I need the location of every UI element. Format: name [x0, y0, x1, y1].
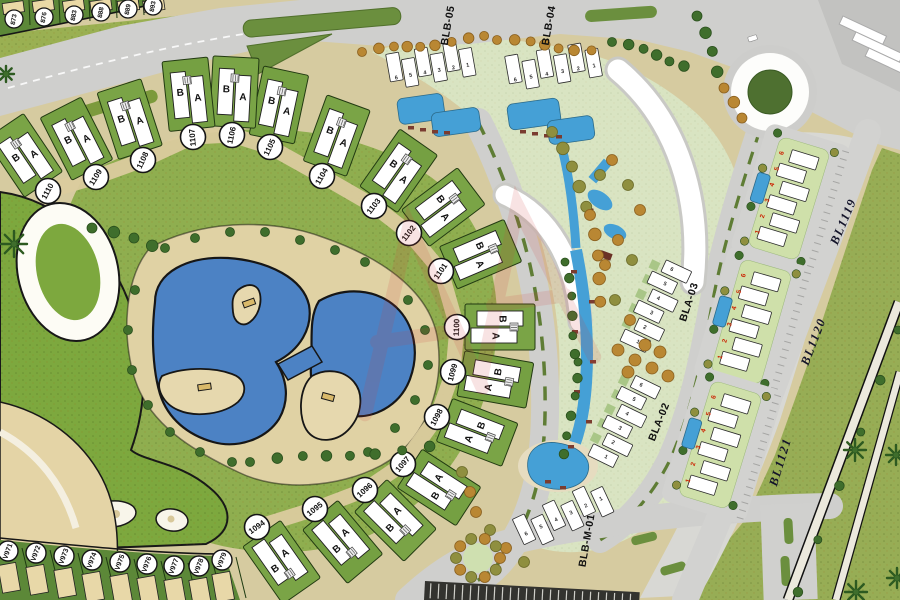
top-plot-badge: 883: [65, 6, 83, 24]
tree-icon: [226, 228, 235, 237]
tree-icon: [402, 41, 413, 52]
top-plot-badge: 889: [119, 0, 137, 18]
tree-icon: [613, 235, 624, 246]
villa-number-badge: 1109: [84, 165, 109, 190]
villa-number-badge: 1107: [181, 125, 206, 150]
tree-icon: [298, 452, 307, 461]
tree-icon: [554, 44, 563, 53]
tree-icon: [391, 424, 400, 433]
villa-number: 1107: [187, 128, 198, 147]
tree-icon: [87, 223, 97, 233]
v-villa-badge: V972: [26, 543, 46, 563]
tree-icon: [124, 326, 133, 335]
villa-number-badge: 1098: [425, 405, 450, 430]
villa-number-badge: 1108: [131, 148, 156, 173]
site-plan-svg: 6543216543211234561234561234566543216543…: [0, 0, 900, 600]
tree-icon: [573, 180, 586, 193]
villa-unit-letter-a: A: [194, 93, 202, 105]
tree-icon: [296, 236, 305, 245]
tree-icon: [719, 83, 729, 93]
tree-icon: [665, 57, 674, 66]
tree-icon: [627, 255, 638, 266]
villa-unit-letter-b: B: [222, 84, 230, 95]
tree-icon: [361, 258, 370, 267]
tree-icon: [814, 536, 822, 544]
sunbed: [444, 131, 450, 135]
tree-icon: [463, 33, 474, 44]
tree-icon: [707, 46, 717, 56]
tree-icon: [728, 96, 740, 108]
tree-icon: [166, 428, 175, 437]
tree-icon: [559, 449, 569, 459]
v-villa-badge: V978: [189, 556, 209, 576]
tree-icon: [424, 441, 435, 452]
tree-icon: [585, 210, 596, 221]
tree-icon: [161, 244, 170, 253]
tree-icon: [612, 344, 624, 356]
villa-unit-letter-b: B: [176, 87, 184, 99]
tree-icon: [131, 286, 140, 295]
v-villa-badge: V977: [164, 556, 184, 576]
tree-icon: [793, 587, 803, 597]
tree-icon: [629, 354, 641, 366]
tree-icon: [196, 448, 205, 457]
v-villa-badge: V979: [212, 550, 232, 570]
tree-icon: [679, 61, 690, 72]
tree-icon: [700, 27, 712, 39]
v-villa-badge: V976: [137, 554, 157, 574]
tree-icon: [331, 246, 340, 255]
tree-icon: [451, 553, 462, 564]
tree-icon: [495, 553, 506, 564]
dock: [198, 383, 212, 391]
tree-icon: [490, 541, 501, 552]
tree-icon: [398, 446, 407, 455]
tree-icon: [108, 226, 120, 238]
tree-icon: [424, 361, 433, 370]
villa-unit-letter-a: A: [239, 92, 247, 103]
tree-icon: [623, 39, 634, 50]
tree-icon: [587, 46, 596, 55]
tree-icon: [566, 161, 577, 172]
tree-icon: [570, 349, 580, 359]
tree-icon: [370, 449, 381, 460]
tree-icon: [608, 38, 617, 47]
tree-icon: [501, 543, 512, 554]
top-plot-badge: 876: [35, 8, 53, 26]
palm-tree-icon: [1, 231, 27, 257]
top-plot-badge: 893: [144, 0, 162, 15]
villa-number-badge: 1103: [362, 194, 387, 219]
tree-icon: [411, 396, 420, 405]
sunbed: [571, 270, 577, 274]
sunbed: [532, 132, 538, 136]
tree-icon: [646, 362, 658, 374]
tree-icon: [509, 34, 520, 45]
tree-icon: [600, 260, 611, 271]
sunbed: [589, 300, 595, 304]
villa-number-badge: 1095: [303, 497, 328, 522]
tree-icon: [564, 273, 574, 283]
tree-icon: [455, 541, 466, 552]
tree-icon: [711, 66, 723, 78]
villa-number-badge: 1106: [220, 123, 245, 148]
tree-icon: [358, 48, 367, 57]
tree-icon: [519, 557, 530, 568]
sunbed: [560, 486, 566, 490]
peninsula: [159, 369, 244, 414]
tree-icon: [465, 487, 476, 498]
v-villa-badge: V971: [0, 541, 18, 561]
tree-icon: [374, 43, 385, 54]
tree-icon: [737, 113, 747, 123]
tree-icon: [471, 507, 482, 518]
tree-icon: [635, 205, 646, 216]
tree-icon: [595, 170, 606, 181]
tree-icon: [272, 453, 283, 464]
tree-icon: [573, 373, 583, 383]
tree-icon: [857, 428, 865, 436]
tree-icon: [557, 142, 570, 155]
tree-icon: [639, 339, 651, 351]
tree-icon: [875, 375, 885, 385]
tree-icon: [480, 31, 489, 40]
sunbed: [586, 420, 592, 424]
tree-icon: [455, 564, 466, 575]
tree-icon: [404, 296, 413, 305]
tree-icon: [479, 572, 490, 583]
tree-icon: [593, 272, 606, 285]
tree-icon: [228, 458, 237, 467]
villa-number-badge: 1096: [353, 478, 378, 503]
villa-plot: BA: [162, 57, 215, 131]
tree-icon: [345, 451, 354, 460]
garden-core: [463, 543, 493, 573]
tree-icon: [639, 44, 648, 53]
tree-icon: [321, 450, 332, 461]
tree-icon: [894, 326, 900, 334]
roundabout: [723, 45, 817, 139]
tree-icon: [144, 401, 153, 410]
tree-icon: [622, 366, 634, 378]
tree-icon: [563, 432, 571, 440]
tree-icon: [561, 258, 569, 266]
villa-plot: BA: [209, 56, 259, 128]
villa-number-badge: 1105: [258, 135, 283, 160]
tree-icon: [692, 11, 702, 21]
sunbed: [432, 130, 438, 134]
tree-icon: [654, 346, 666, 358]
tree-icon: [246, 458, 255, 467]
villa-number-badge: 1099: [441, 360, 466, 385]
sunbed: [568, 445, 574, 449]
top-plot-badge: 873: [5, 10, 23, 28]
tree-icon: [416, 42, 425, 51]
villa-number-badge: 1104: [310, 164, 335, 189]
sunbed: [545, 480, 551, 484]
tree-icon: [457, 467, 468, 478]
v-villa-badge: V973: [54, 546, 74, 566]
villa-number-badge: 1110: [36, 179, 61, 204]
tree-icon: [547, 127, 558, 138]
tree-icon: [589, 228, 602, 241]
v-villa-badge: V974: [82, 550, 102, 570]
sunbed: [408, 126, 414, 130]
tree-icon: [191, 234, 200, 243]
tree-icon: [592, 250, 603, 261]
tree-icon: [526, 37, 535, 46]
tree-icon: [466, 533, 477, 544]
tree-icon: [261, 228, 270, 237]
tree-icon: [146, 240, 158, 252]
villa-number-badge: 1094: [245, 515, 270, 540]
tree-icon: [651, 50, 662, 61]
sunbed: [420, 128, 426, 132]
tree-icon: [571, 392, 579, 400]
tree-icon: [466, 572, 477, 583]
tree-icon: [610, 295, 621, 306]
villa-number-badge: 1097: [391, 452, 416, 477]
tree-icon: [389, 42, 398, 51]
tree-icon: [479, 533, 490, 544]
tree-icon: [835, 481, 845, 491]
sunbed: [520, 130, 526, 134]
master-plan-map: 6543216543211234561234561234566543216543…: [0, 0, 900, 600]
palm-tree-icon: [844, 439, 866, 461]
tree-icon: [493, 36, 502, 45]
tree-icon: [623, 180, 634, 191]
tree-icon: [128, 366, 137, 375]
tree-icon: [490, 564, 501, 575]
tree-icon: [607, 155, 618, 166]
sunbed: [556, 135, 562, 139]
tree-icon: [595, 296, 606, 307]
top-plot-badge: 888: [92, 3, 110, 21]
tree-icon: [625, 315, 636, 326]
v-villa-badge: V975: [110, 552, 130, 572]
tree-icon: [662, 370, 674, 382]
tree-icon: [569, 45, 580, 56]
road-median: [783, 518, 793, 544]
tree-icon: [566, 411, 576, 421]
tree-icon: [574, 358, 582, 366]
tree-icon: [129, 233, 139, 243]
